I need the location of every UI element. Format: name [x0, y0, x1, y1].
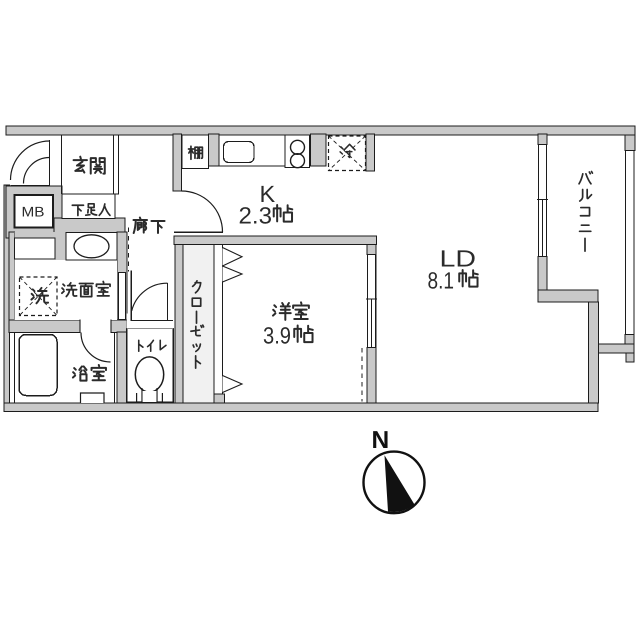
svg-text:MB: MB [22, 204, 45, 220]
svg-text:2.3: 2.3 [239, 203, 273, 229]
svg-text:N: N [372, 427, 390, 454]
svg-text:3.9: 3.9 [263, 323, 291, 349]
svg-text:8.1: 8.1 [428, 268, 455, 294]
